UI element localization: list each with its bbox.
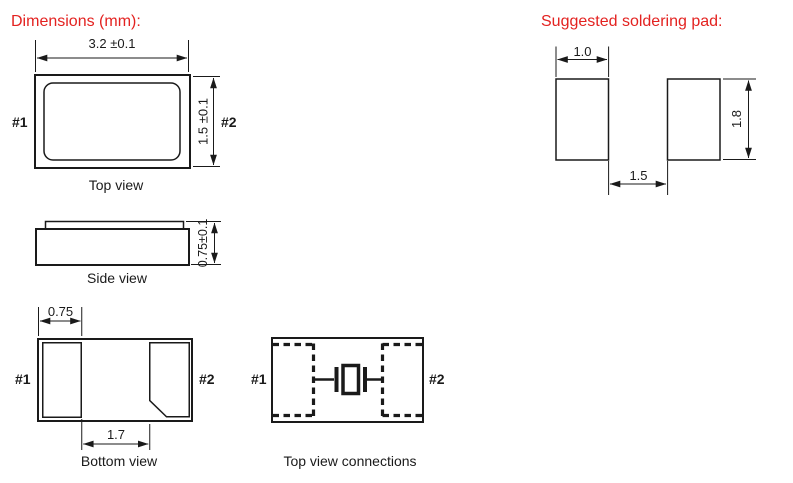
dimensions-diagram: Dimensions (mm): Suggested soldering pad… (0, 0, 793, 483)
top-view-height-dim-text: 1.5 ±0.1 (196, 98, 211, 145)
side-view-lid-outline (46, 222, 184, 230)
soldering-pad1-outline (556, 79, 609, 160)
datasheet-dimensions-page: Dimensions (mm): Suggested soldering pad… (0, 0, 793, 483)
connections-pin2-label: #2 (429, 371, 445, 387)
top-view-pin1-label: #1 (12, 114, 28, 130)
side-view-thickness-dim-text: 0.75±0.1 (196, 219, 210, 268)
soldering-pad-gap-dim-text: 1.5 (629, 168, 647, 183)
bottom-view-pad-width-dim-text: 0.75 (48, 304, 73, 319)
dimensions-title: Dimensions (mm): (11, 13, 141, 30)
connections-pin1-label: #1 (251, 371, 267, 387)
bottom-view-pin2-label: #2 (199, 371, 215, 387)
soldering-pad-height-dim-text: 1.8 (729, 110, 744, 128)
connections-package-outline (272, 338, 423, 422)
top-view-lid-outline (44, 83, 180, 160)
side-view-caption: Side view (87, 270, 148, 286)
bottom-view-pin1-label: #1 (15, 371, 31, 387)
connections-view-caption: Top view connections (283, 453, 416, 469)
soldering-pad-width-dim-text: 1.0 (573, 44, 591, 59)
soldering-pad-group: 1.0 1.5 1.8 (556, 44, 756, 195)
soldering-pad2-outline (668, 79, 721, 160)
bottom-view-caption: Bottom view (81, 453, 158, 469)
top-view-group: 3.2 ±0.1 1.5 ±0.1 #1 #2 Top view (12, 36, 237, 193)
side-view-body-outline (36, 229, 189, 265)
side-view-group: 0.75±0.1 Side view (36, 219, 221, 286)
bottom-view-pad2-outline (150, 343, 190, 417)
bottom-view-pad1-outline (43, 343, 82, 418)
top-view-width-dim-text: 3.2 ±0.1 (89, 36, 136, 51)
bottom-view-pad-gap-dim-text: 1.7 (107, 427, 125, 442)
soldering-pad-title: Suggested soldering pad: (541, 13, 722, 30)
top-view-pin2-label: #2 (221, 114, 237, 130)
top-view-caption: Top view (89, 177, 144, 193)
connections-view-group: #1 #2 Top view connections (251, 338, 445, 469)
bottom-view-group: 0.75 1.7 #1 #2 Bottom view (15, 304, 215, 469)
